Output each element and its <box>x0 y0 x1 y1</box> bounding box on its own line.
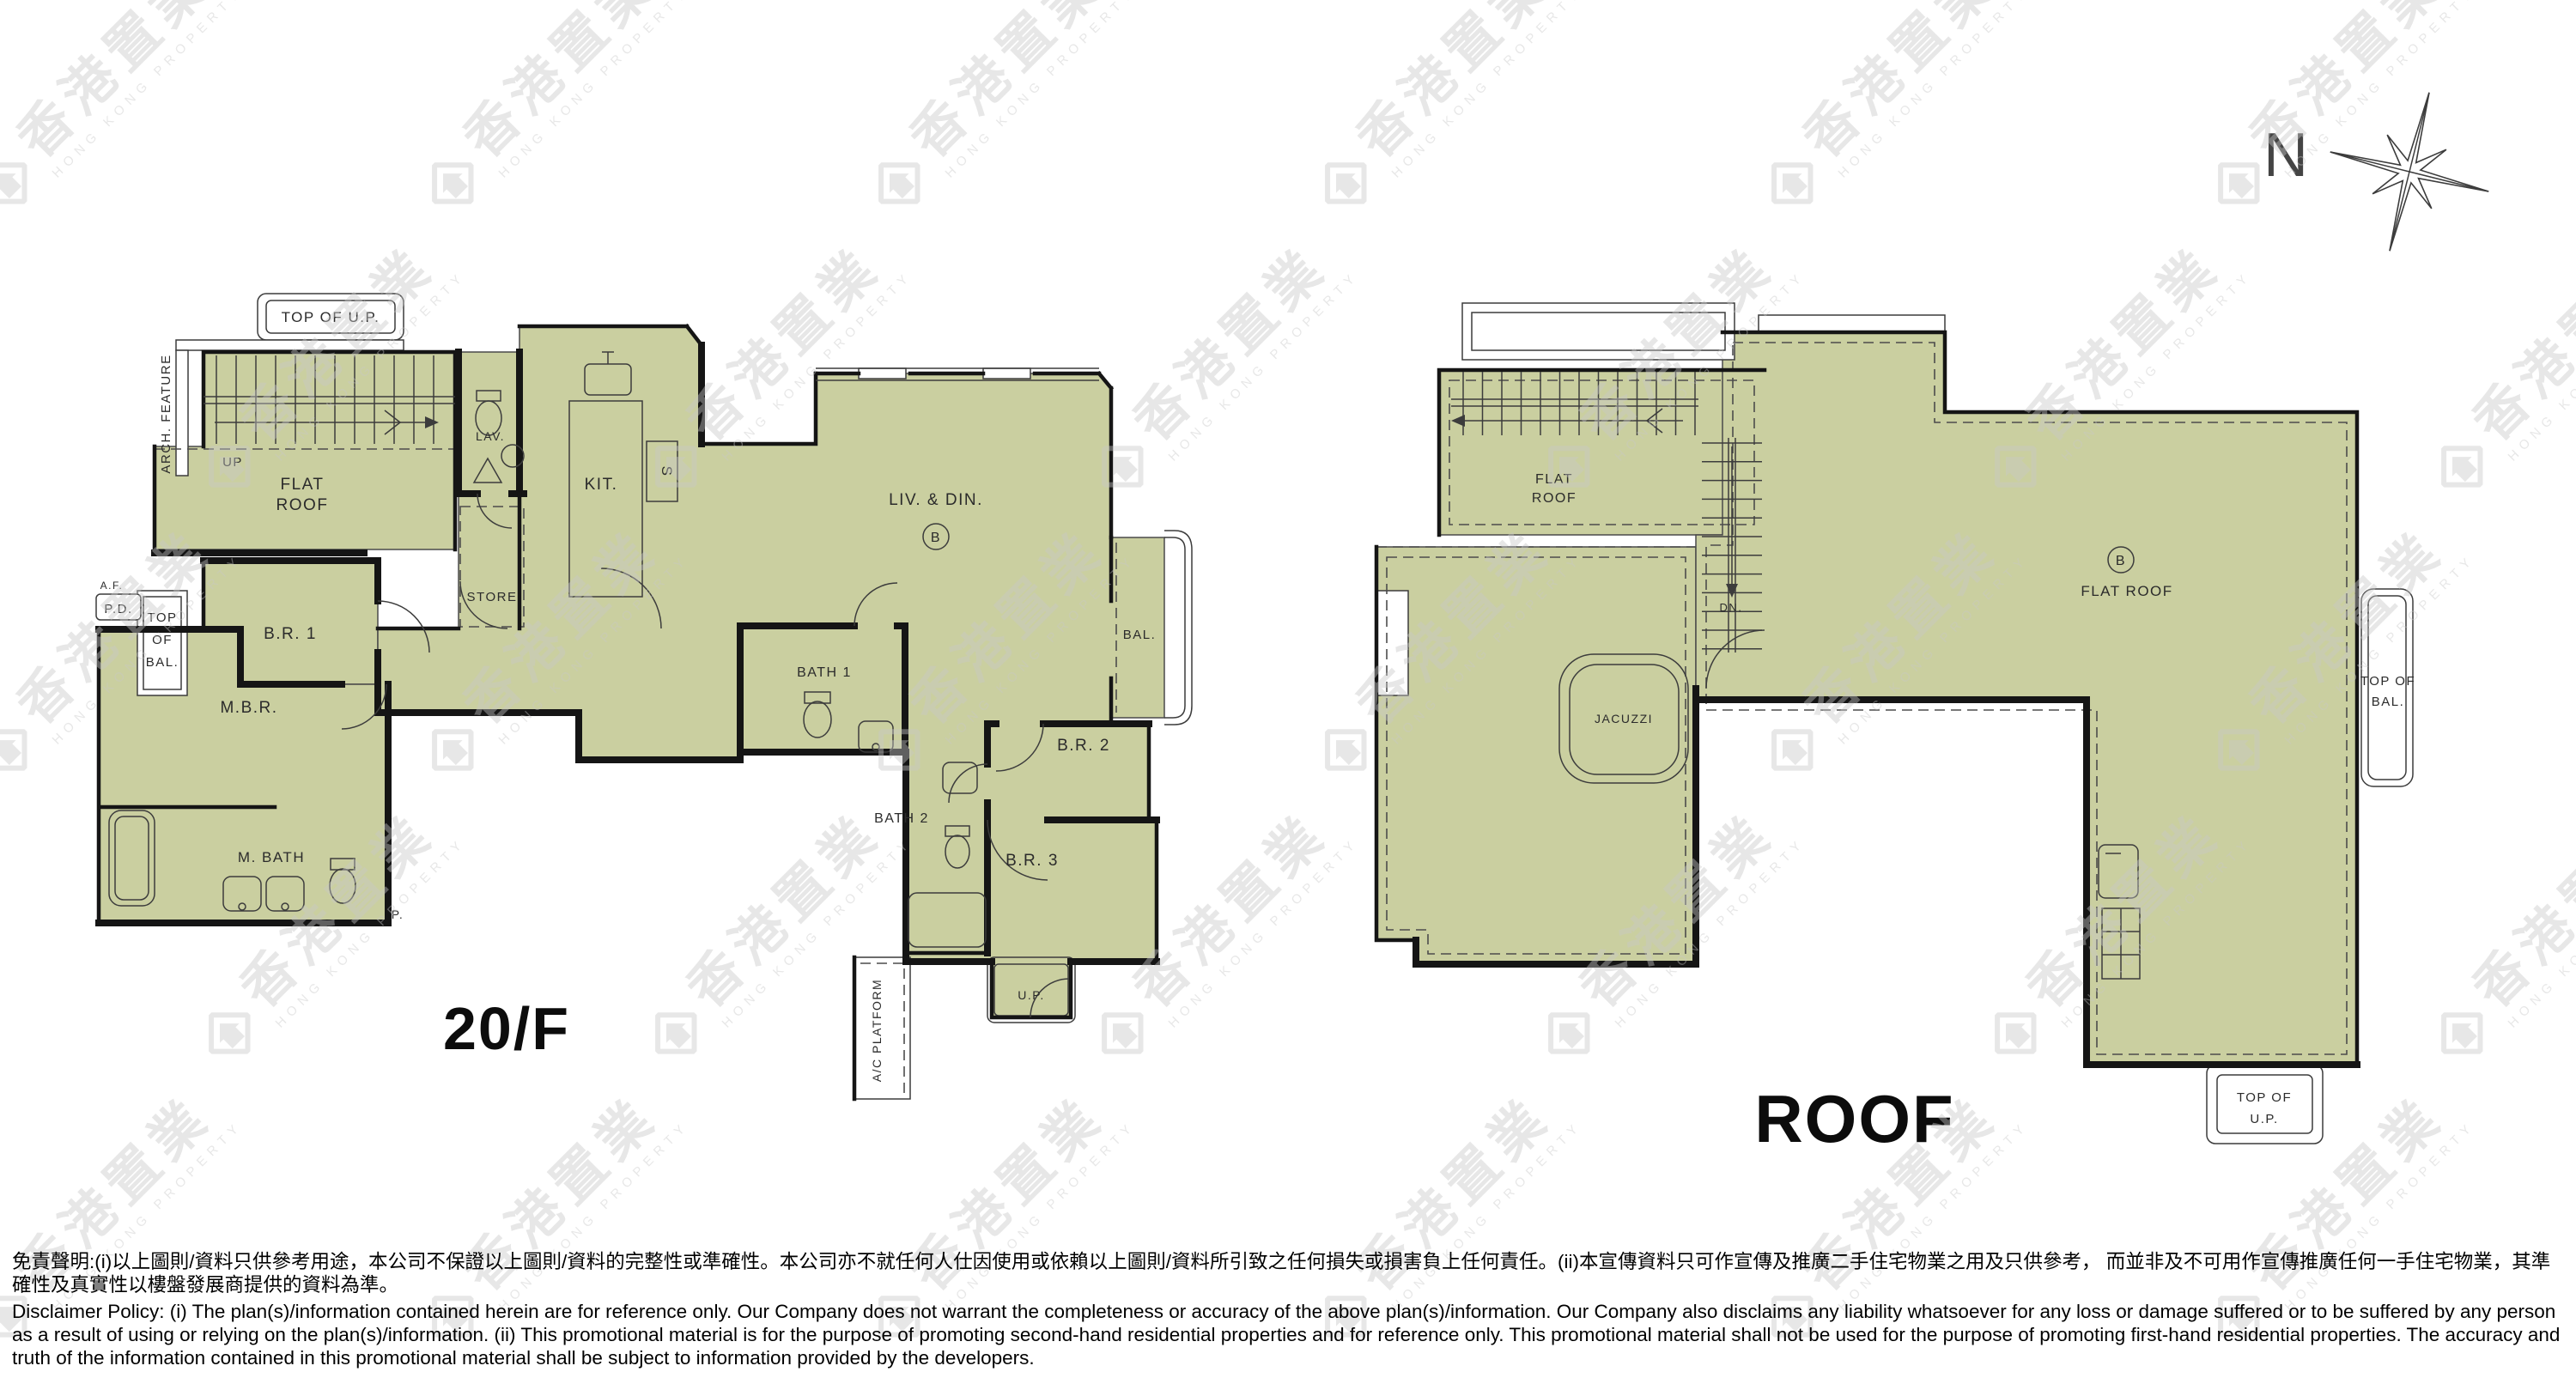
label-jacuzzi: JACUZZI <box>1595 712 1653 725</box>
label-bal: BAL. <box>1123 628 1157 642</box>
label-up-small: U.P. <box>1018 988 1044 1002</box>
compass: N <box>2263 93 2488 251</box>
label-lav: LAV. <box>476 429 505 443</box>
label-top-of-bal-3: BAL. <box>146 655 179 670</box>
label-store: STORE <box>467 590 518 604</box>
label-pd: P.D. <box>104 602 132 616</box>
label-unit-b-roof: B <box>2116 554 2126 568</box>
label-roof-top-of-bal-1: TOP OF <box>2360 674 2415 689</box>
floorplan-roof: FLAT ROOF DN. JACUZZI B FLAT ROOF TOP OF… <box>1376 303 2415 1156</box>
label-flat-roof-1: FLAT <box>280 476 324 494</box>
label-dn: DN. <box>1720 601 1743 614</box>
label-br1: B.R. 1 <box>264 625 317 643</box>
label-af: A.F. <box>100 580 124 592</box>
label-roof-top-of-bal-2: BAL. <box>2372 695 2405 709</box>
floorplan-20f: TOP OF U.P. ARCH. FEATURE UP FLAT ROOF B… <box>96 294 1192 1099</box>
label-roof-top-of-up-2: U.P. <box>2250 1112 2278 1126</box>
label-ac-platform: A/C PLATFORM <box>870 979 884 1082</box>
label-bath2: BATH 2 <box>874 811 929 826</box>
label-top-of-up: TOP OF U.P. <box>282 309 380 325</box>
label-m-bath: M. BATH <box>238 849 305 865</box>
disclaimer-zh: 免責聲明:(i)以上圖則/資料只供參考用途，本公司不保證以上圖則/資料的完整性或… <box>12 1250 2564 1296</box>
floor-title-roof: ROOF <box>1754 1081 1954 1156</box>
label-kit: KIT. <box>585 476 618 494</box>
label-roof-top-of-up-1: TOP OF <box>2237 1090 2292 1105</box>
label-bath1: BATH 1 <box>797 665 852 680</box>
label-up: UP <box>222 455 243 470</box>
floorplan-20f-floor-areas <box>99 326 1164 1017</box>
disclaimer-en: Disclaimer Policy: (i) The plan(s)/infor… <box>12 1300 2564 1369</box>
floorplans-canvas: TOP OF U.P. ARCH. FEATURE UP FLAT ROOF B… <box>0 0 2576 1384</box>
label-br2: B.R. 2 <box>1057 737 1110 755</box>
floorplan-page: TOP OF U.P. ARCH. FEATURE UP FLAT ROOF B… <box>0 0 2576 1384</box>
label-top-of-bal-2: OF <box>152 633 173 647</box>
label-flat-roof-2: ROOF <box>276 496 329 514</box>
label-mbr: M.B.R. <box>220 699 277 717</box>
label-top-of-bal-1: TOP <box>147 610 177 625</box>
floor-title-20f: 20/F <box>443 995 570 1062</box>
compass-spokes <box>2330 93 2488 251</box>
label-roof-flat-roof-1: FLAT <box>1535 472 1573 487</box>
label-roof-flat-roof-2: ROOF <box>1532 491 1577 506</box>
label-flat-roof-main: FLAT ROOF <box>2081 583 2172 599</box>
disclaimer-block: 免責聲明:(i)以上圖則/資料只供參考用途，本公司不保證以上圖則/資料的完整性或… <box>12 1250 2564 1373</box>
label-p: P. <box>392 907 404 921</box>
label-br3: B.R. 3 <box>1005 852 1059 870</box>
compass-n-label: N <box>2263 121 2308 190</box>
label-sink-s: S <box>659 466 675 477</box>
label-liv-din: LIV. & DIN. <box>889 491 983 509</box>
label-arch-feature: ARCH. FEATURE <box>159 354 173 473</box>
label-unit-b-20f: B <box>931 531 941 545</box>
